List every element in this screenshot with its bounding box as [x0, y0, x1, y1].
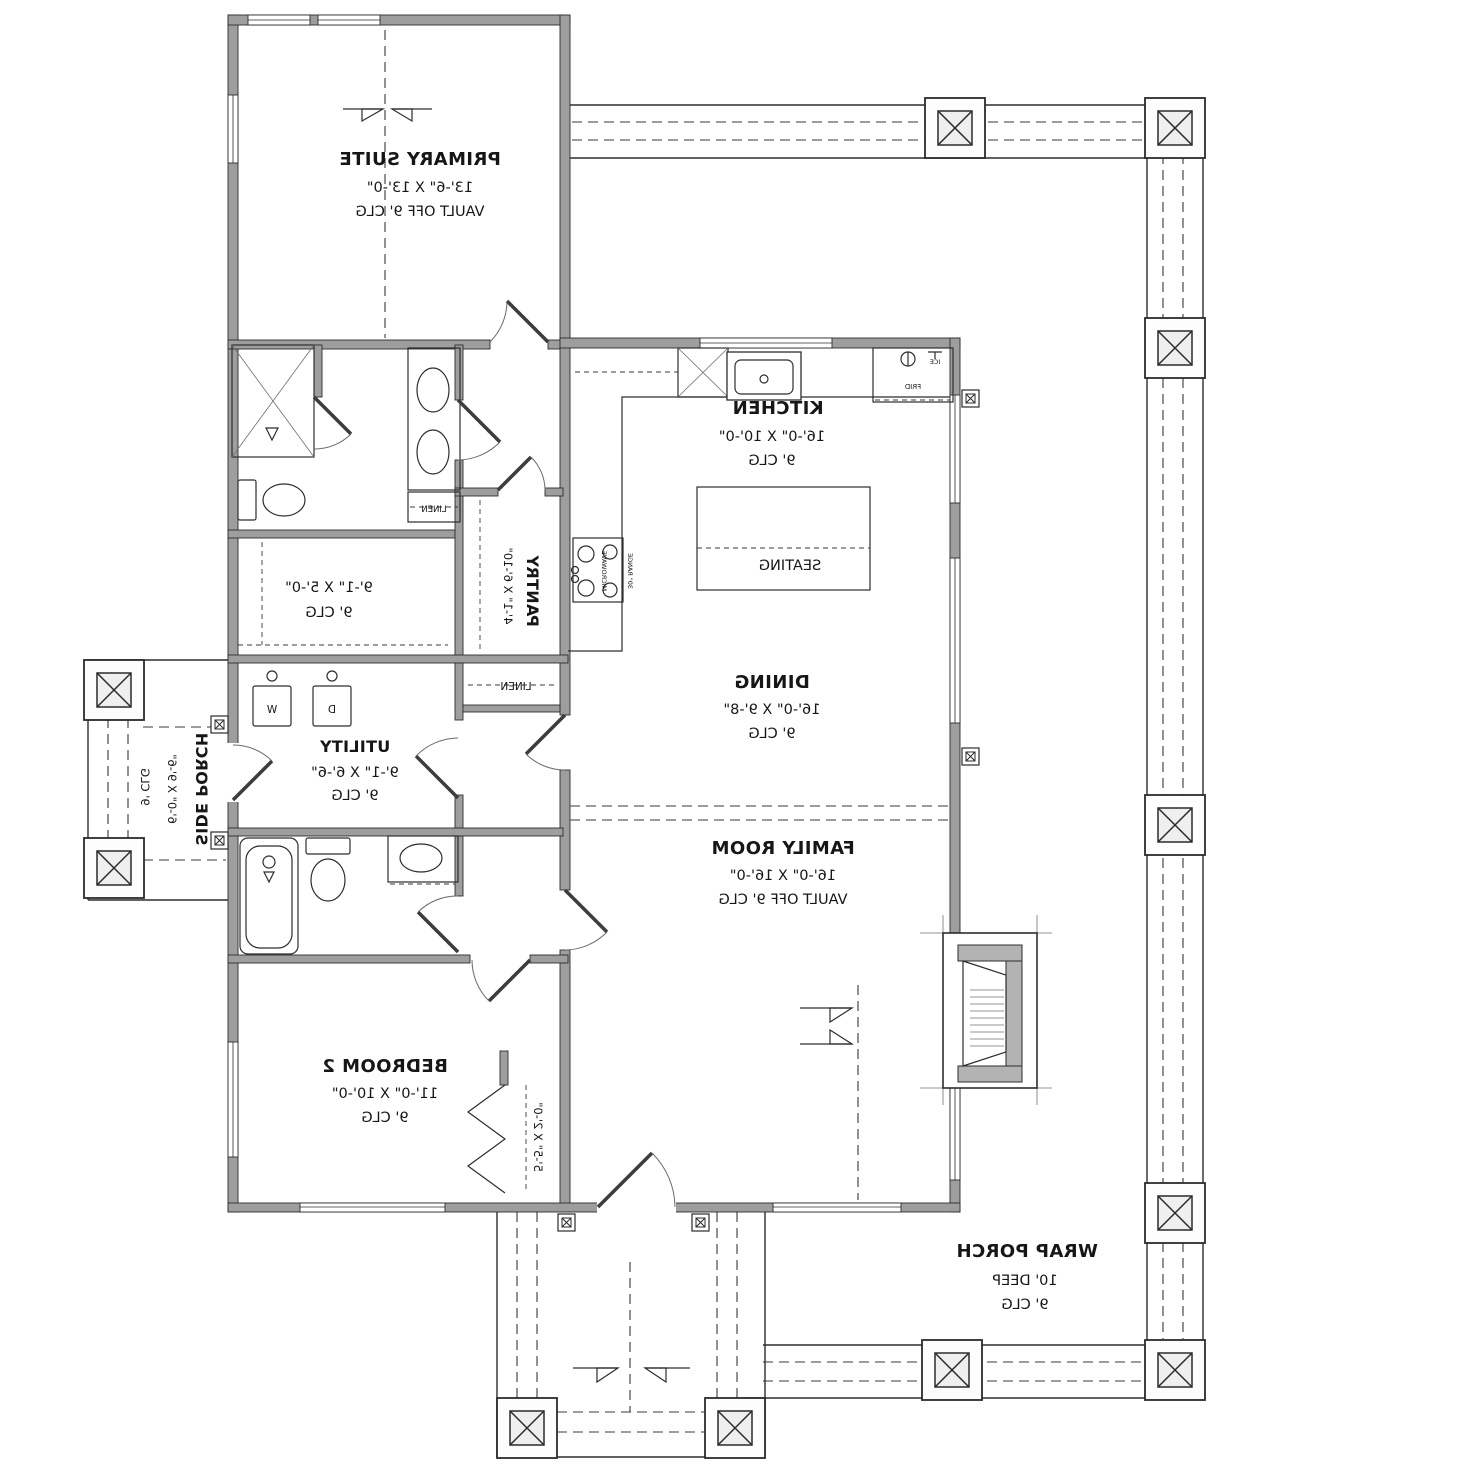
seating-label: SEATING: [759, 558, 821, 574]
refrigerator: [873, 348, 953, 402]
porch-column: [84, 660, 144, 720]
fridge-label: FRID: [905, 383, 921, 391]
bath-hall-door: [458, 400, 500, 460]
bedroom2-label: BEDROOM 2: [322, 1056, 448, 1077]
primary-suite-label: PRIMARY SUITE: [339, 149, 501, 170]
closet-bifold-doors: [468, 1085, 505, 1193]
porch-column: [84, 838, 144, 898]
vanity-bath2: [388, 836, 458, 882]
kitchen-island: [697, 487, 870, 590]
bath2-door: [418, 896, 458, 952]
floor-plan: PRIMARY SUITE 13'-6" X 13'-0" VAULT OFF …: [0, 0, 1474, 1474]
post-base: [692, 1214, 709, 1231]
pantry-door: [498, 457, 545, 490]
walk-in-closet-ceiling: 9' CLG: [305, 605, 352, 621]
bedroom2-ceiling: 9' CLG: [361, 1110, 408, 1126]
kitchen-dims: 16'-0" X 10'-0": [719, 429, 825, 445]
primary-suite-door: [490, 301, 548, 342]
hall-dining-door: [526, 715, 565, 770]
wrap-porch-ceiling: 9' CLG: [1001, 1297, 1048, 1313]
kitchen-ceiling: 9' CLG: [748, 453, 795, 469]
porch-column: [1145, 318, 1205, 378]
kitchen-sink: [727, 352, 801, 400]
wrap-porch-dims: 10' DEEP: [992, 1273, 1058, 1289]
wrap-porch-label: WRAP PORCH: [956, 1241, 1098, 1262]
post-base: [211, 832, 228, 849]
washer-label: W: [266, 704, 277, 716]
post-base: [962, 748, 979, 765]
front-door: [598, 1153, 675, 1207]
washer-dryer: [253, 671, 351, 726]
utility-label: UTILITY: [320, 737, 391, 756]
primary-suite-ceiling: VAULT OFF 9' CLG: [355, 204, 484, 220]
linen-bath-label: LINEN: [421, 505, 446, 515]
utility-ceiling: 9' CLG: [331, 788, 378, 804]
family-room-label: FAMILY ROOM: [711, 838, 855, 859]
pantry-dims: 4'-1" X 6'-10": [501, 548, 515, 625]
porch-column: [1145, 1183, 1205, 1243]
kitchen-label: KITCHEN: [732, 398, 823, 419]
side-porch-dims: 6'-0" X 9'-6": [165, 754, 179, 824]
family-room-dims: 16'-0" X 16'-0": [730, 868, 836, 884]
ridge-markers: [343, 109, 852, 1382]
shower: [232, 345, 314, 457]
porch-column: [705, 1398, 765, 1458]
post-base: [211, 716, 228, 733]
family-room-door: [565, 890, 607, 950]
family-room-ceiling: VAULT OFF 9' CLG: [718, 892, 847, 908]
floor-plan-drawing: PRIMARY SUITE 13'-6" X 13'-0" VAULT OFF …: [0, 0, 1474, 1474]
vanity-primary: [408, 348, 460, 490]
porch-column: [1145, 98, 1205, 158]
fireplace: [920, 915, 1052, 1105]
utility-door: [416, 738, 458, 798]
side-porch-ceiling: 9' CLG: [138, 768, 152, 805]
pantry-label: PANTRY: [523, 555, 542, 627]
porch-column: [497, 1398, 557, 1458]
bedroom2-dims: 11'-0" X 10'-0": [332, 1086, 438, 1102]
dryer-label: D: [328, 704, 336, 716]
wall-openings: [227, 743, 676, 1214]
ice-maker-label: ICE: [930, 358, 941, 366]
porch-column: [1145, 795, 1205, 855]
shower-door: [314, 397, 351, 449]
linen-hall-label: LINEN: [500, 681, 531, 693]
porch-column: [1145, 1340, 1205, 1400]
utility-dims: 9'-1" X 6'-6": [311, 765, 399, 781]
porch-column: [922, 1340, 982, 1400]
range: [572, 538, 624, 602]
dining-dims: 16'-0" X 9'-8": [723, 702, 820, 718]
post-base: [962, 390, 979, 407]
walk-in-closet-dims: 9'-1" X 5'-0": [285, 580, 373, 596]
porch-column: [925, 98, 985, 158]
side-porch-label: SIDE PORCH: [192, 732, 211, 845]
bedroom2-closet-dims: 5'-5" X 2'-0": [531, 1102, 545, 1172]
dining-ceiling: 9' CLG: [748, 726, 795, 742]
microwave-label: MICROWAVE: [600, 551, 608, 591]
toilet-bath2: [306, 838, 350, 901]
dining-label: DINING: [734, 672, 810, 693]
bathtub: [240, 838, 298, 954]
bedroom2-door: [472, 960, 530, 1001]
toilet-primary: [238, 480, 305, 520]
post-base: [558, 1214, 575, 1231]
range-label: 30" RANGE: [626, 553, 634, 589]
primary-suite-dims: 13'-6" X 13'-0": [367, 180, 473, 196]
